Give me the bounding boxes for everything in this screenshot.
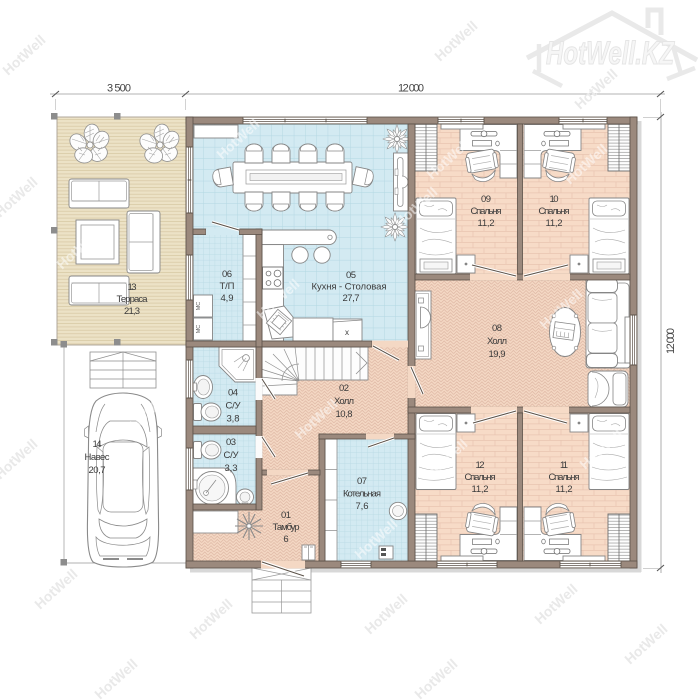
svg-text:12: 12	[476, 460, 485, 471]
svg-text:Холл: Холл	[487, 336, 507, 347]
svg-text:МС: МС	[196, 325, 202, 334]
svg-text:01: 01	[281, 510, 291, 521]
svg-text:11,2: 11,2	[546, 218, 563, 229]
svg-text:13: 13	[128, 282, 137, 293]
svg-text:Спальня: Спальня	[465, 472, 496, 483]
svg-text:x: x	[345, 328, 349, 337]
svg-text:08: 08	[492, 323, 502, 334]
svg-text:Спальня: Спальня	[549, 472, 580, 483]
svg-text:3,8: 3,8	[227, 414, 240, 425]
svg-text:4,9: 4,9	[221, 293, 234, 304]
svg-text:3 500: 3 500	[107, 83, 131, 95]
svg-text:Терраса: Терраса	[117, 294, 149, 305]
svg-text:Навес: Навес	[85, 452, 110, 463]
svg-text:05: 05	[346, 270, 356, 281]
svg-text:МС: МС	[196, 302, 202, 311]
svg-text:06: 06	[222, 269, 232, 280]
svg-text:10,8: 10,8	[336, 409, 353, 420]
svg-text:7,6: 7,6	[356, 501, 369, 512]
svg-text:10: 10	[550, 194, 559, 205]
svg-text:02: 02	[339, 383, 349, 394]
svg-text:20,7: 20,7	[89, 465, 106, 476]
svg-text:Т/П: Т/П	[220, 281, 235, 292]
svg-text:11,2: 11,2	[478, 218, 495, 229]
svg-text:11: 11	[560, 460, 568, 471]
svg-text:27,7: 27,7	[343, 293, 360, 304]
svg-text:Котельная: Котельная	[343, 489, 381, 500]
svg-text:Спальня: Спальня	[539, 206, 570, 217]
svg-text:С/У: С/У	[226, 401, 242, 412]
svg-text:Тамбур: Тамбур	[273, 522, 300, 533]
svg-text:Кухня - Столовая: Кухня - Столовая	[312, 282, 387, 293]
svg-text:11,2: 11,2	[556, 484, 573, 495]
svg-text:Спальня: Спальня	[471, 206, 502, 217]
svg-text:3,3: 3,3	[225, 463, 238, 474]
svg-text:07: 07	[357, 476, 367, 487]
svg-text:14: 14	[93, 439, 102, 450]
svg-text:12 000: 12 000	[665, 328, 677, 354]
svg-text:6: 6	[283, 534, 288, 545]
svg-text:03: 03	[226, 437, 236, 448]
svg-text:04: 04	[228, 388, 238, 399]
svg-text:11,2: 11,2	[472, 484, 489, 495]
svg-text:19,9: 19,9	[489, 349, 506, 360]
svg-text:С/У: С/У	[224, 450, 240, 461]
svg-text:21,3: 21,3	[124, 306, 140, 317]
svg-text:12 000: 12 000	[398, 83, 424, 95]
svg-text:HotWell.KZ: HotWell.KZ	[546, 35, 675, 71]
svg-text:09: 09	[481, 194, 491, 205]
